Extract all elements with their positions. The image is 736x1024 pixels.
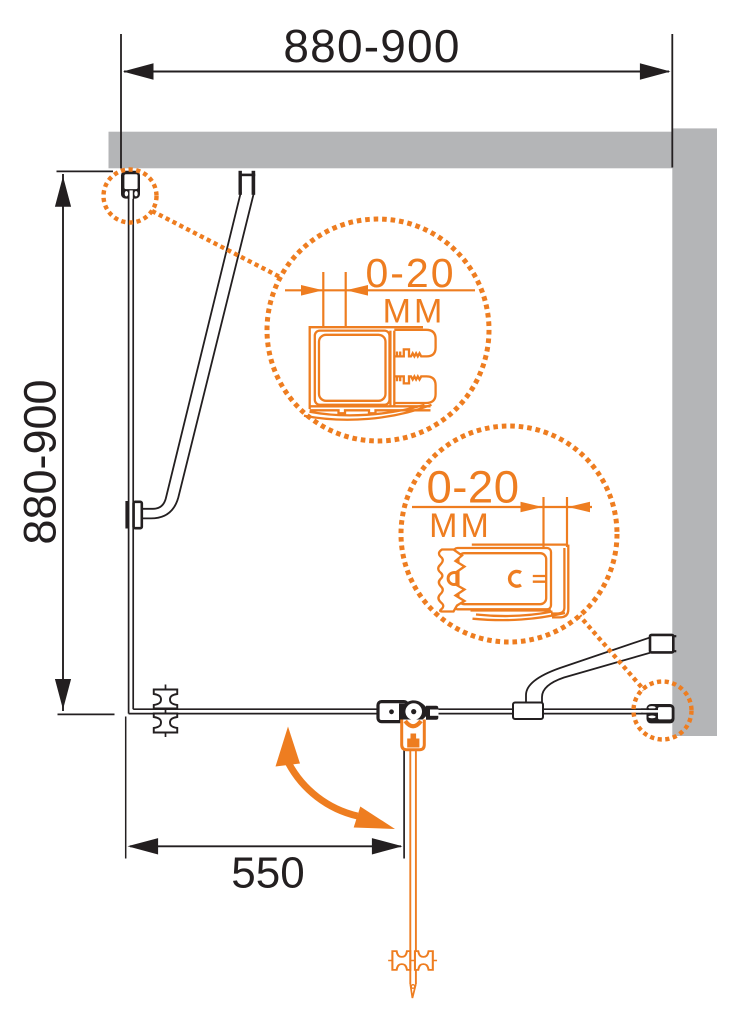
- svg-text:ММ: ММ: [383, 293, 446, 331]
- svg-text:0-20: 0-20: [365, 250, 455, 296]
- svg-text:880-900: 880-900: [283, 20, 460, 72]
- svg-text:0-20: 0-20: [426, 462, 519, 513]
- svg-text:550: 550: [231, 849, 304, 898]
- svg-text:ММ: ММ: [429, 507, 492, 545]
- svg-text:880-900: 880-900: [15, 379, 66, 544]
